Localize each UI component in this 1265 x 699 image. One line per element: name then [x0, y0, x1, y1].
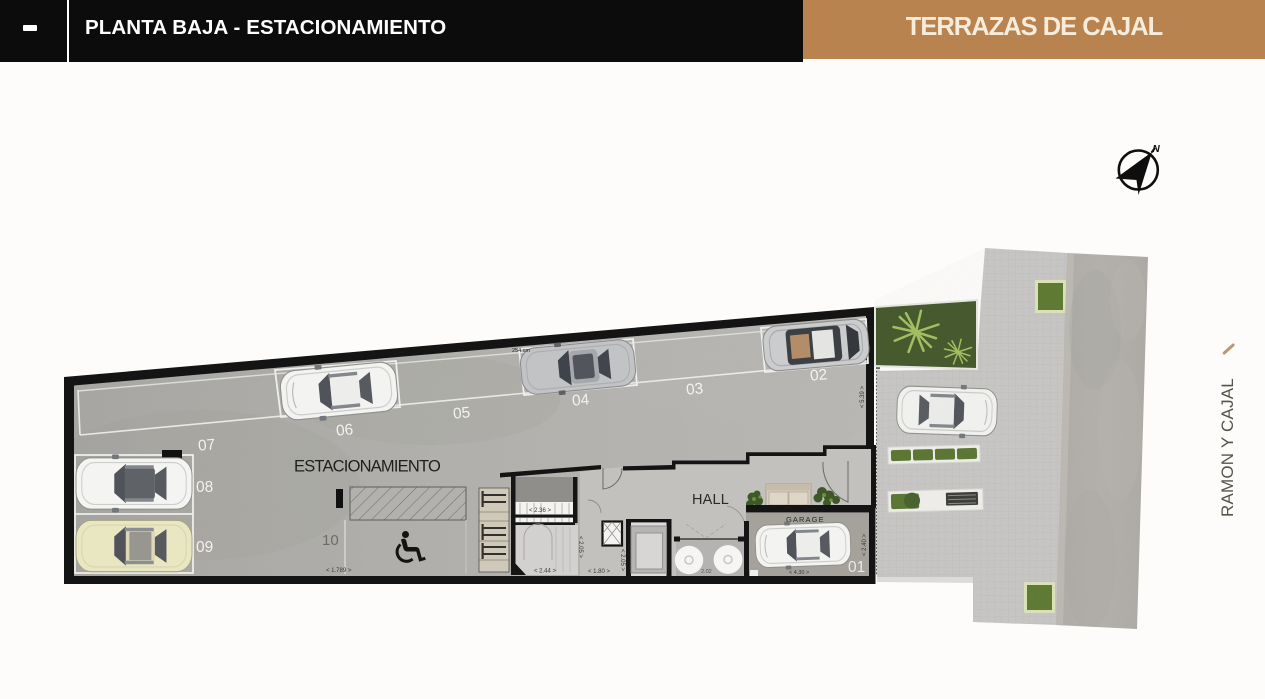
svg-text:RAMON Y CAJAL: RAMON Y CAJAL — [1218, 378, 1237, 517]
svg-text:< 2.44 >: < 2.44 > — [534, 569, 557, 575]
svg-text:< 1.80 >: < 1.80 > — [588, 569, 611, 575]
svg-text:02: 02 — [809, 366, 828, 384]
svg-text:03: 03 — [685, 380, 704, 398]
svg-text:05: 05 — [452, 404, 471, 422]
svg-text:< 2.05 >: < 2.05 > — [577, 536, 583, 559]
svg-text:< 1.789 >: < 1.789 > — [326, 568, 352, 574]
svg-text:08: 08 — [196, 479, 213, 496]
svg-text:09: 09 — [196, 539, 213, 556]
svg-text:254 cm: 254 cm — [512, 348, 530, 354]
svg-text:2.02: 2.02 — [701, 569, 712, 575]
svg-text:06: 06 — [335, 421, 354, 439]
svg-text:< 2.05 >: < 2.05 > — [619, 549, 625, 572]
svg-text:ESTACIONAMIENTO: ESTACIONAMIENTO — [294, 458, 441, 476]
svg-text:01: 01 — [848, 559, 865, 576]
svg-text:10: 10 — [322, 532, 339, 549]
svg-text:< 5.39 >: < 5.39 > — [860, 385, 866, 408]
svg-text:< 2.40 >: < 2.40 > — [862, 533, 868, 556]
svg-text:< 4.30 >: < 4.30 > — [789, 570, 809, 576]
svg-text:< 2.36 >: < 2.36 > — [529, 508, 552, 514]
svg-text:07: 07 — [197, 436, 216, 454]
svg-text:N: N — [1153, 144, 1161, 155]
svg-text:04: 04 — [571, 391, 590, 409]
svg-text:HALL: HALL — [692, 492, 729, 508]
